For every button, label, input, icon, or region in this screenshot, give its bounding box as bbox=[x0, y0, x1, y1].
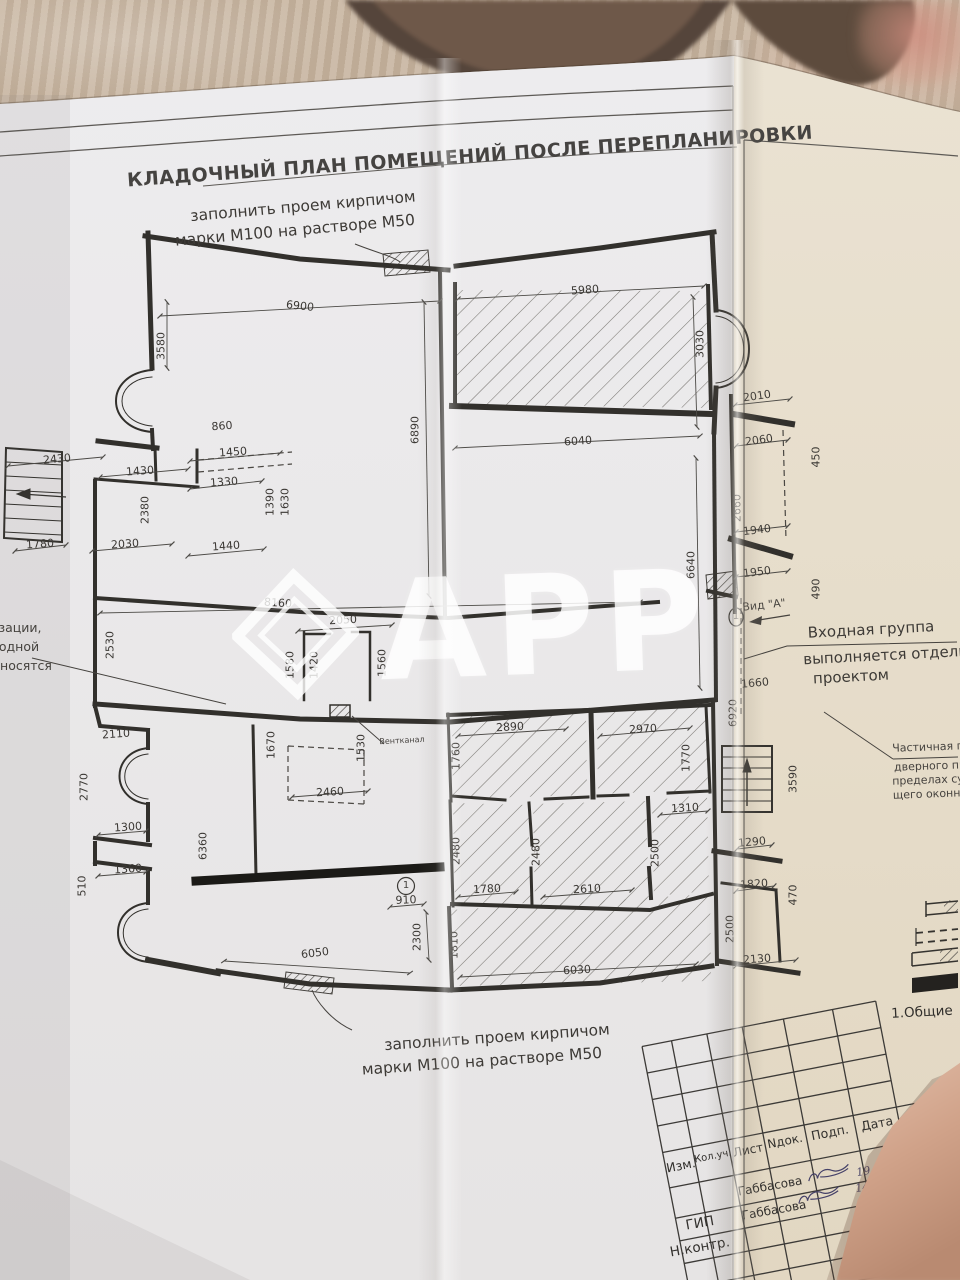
photo-of-masonry-plan: 6900598030303580243086014501430133013901… bbox=[0, 0, 960, 1280]
plan-sheet-graphics bbox=[0, 0, 960, 1280]
top-right-blur bbox=[856, 0, 960, 86]
paper-sheet bbox=[0, 56, 960, 1280]
